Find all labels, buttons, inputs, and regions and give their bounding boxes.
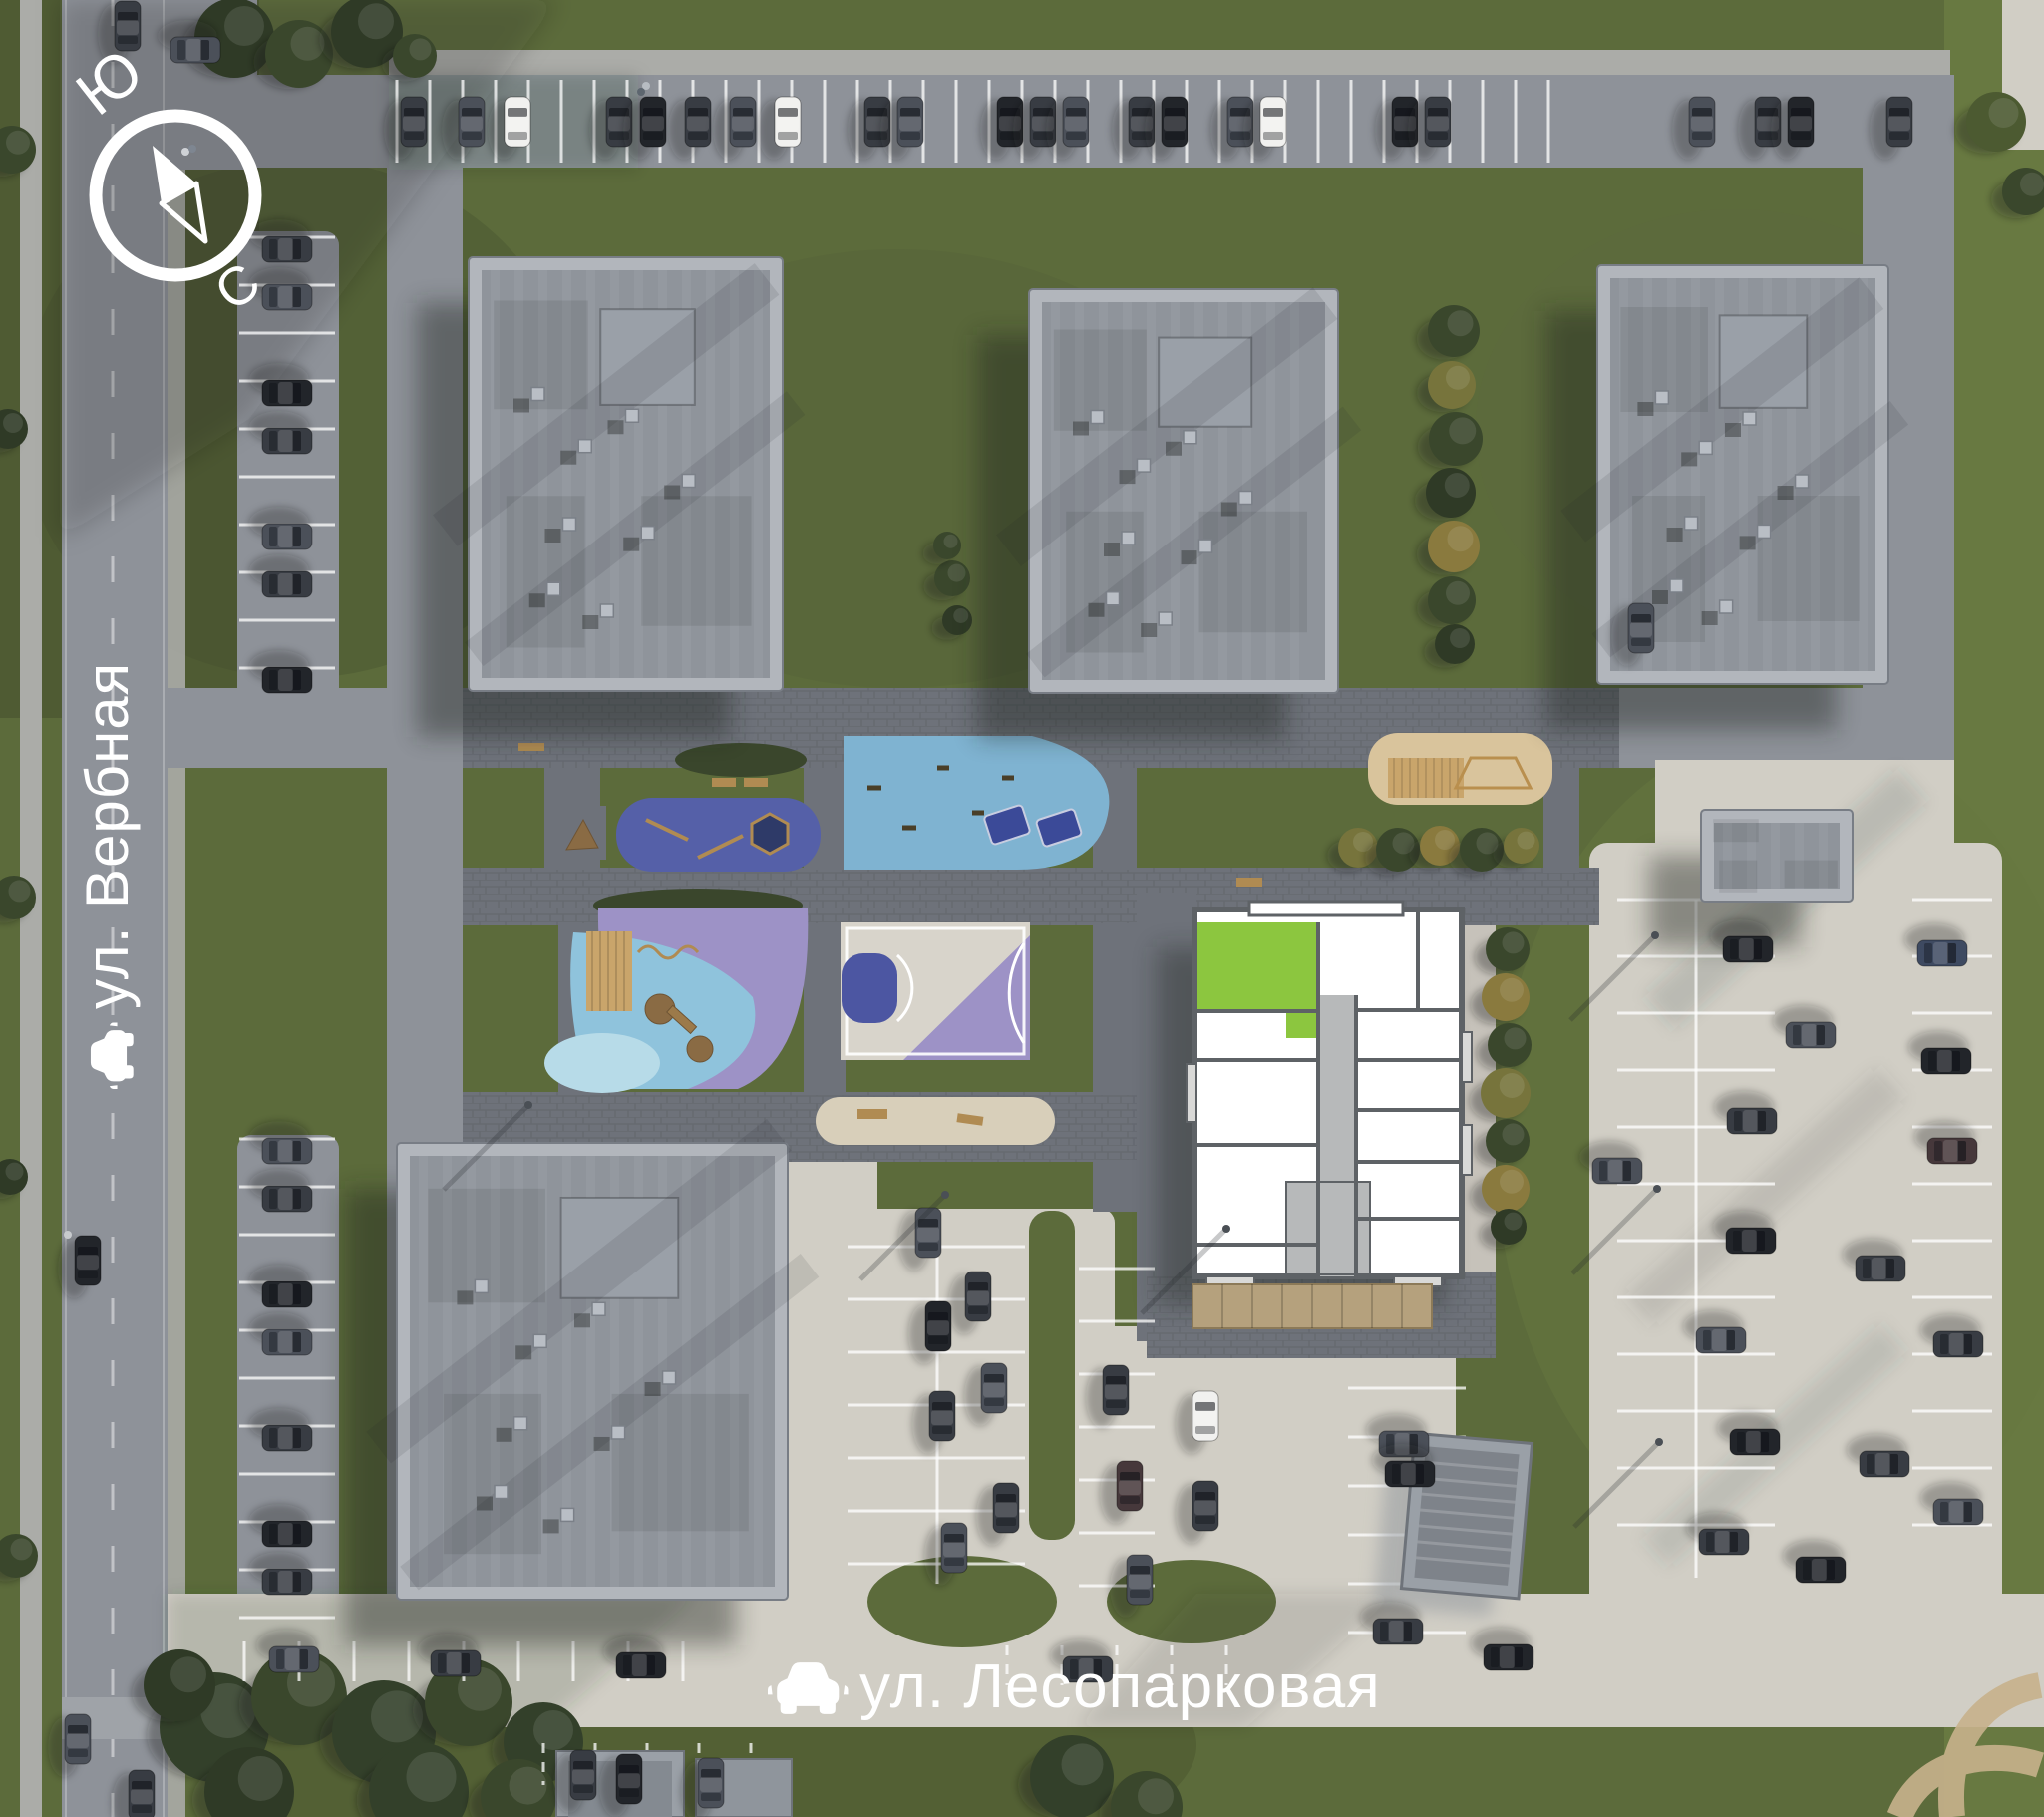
basketball-court bbox=[841, 922, 1030, 1060]
street-name-left: ул. Вербная bbox=[74, 662, 141, 1009]
masterplan-svg: Ю С ул. Вербная ул. Лесопарковая bbox=[0, 0, 2044, 1817]
street-label-lesoparkovaya: ул. Лесопарковая bbox=[768, 1652, 1381, 1721]
wooden-deck bbox=[586, 931, 632, 1011]
building-roof bbox=[1701, 810, 1853, 902]
building-roof bbox=[433, 257, 805, 691]
fitness-area bbox=[844, 736, 1109, 870]
highlighted-apartment-annex[interactable] bbox=[1286, 1011, 1319, 1038]
building-roof bbox=[1560, 265, 1908, 684]
entrance-canopy bbox=[1192, 1284, 1432, 1328]
building-roof bbox=[366, 1119, 819, 1600]
selected-building-floorplan[interactable] bbox=[1157, 902, 1472, 1328]
highlighted-apartment[interactable] bbox=[1197, 922, 1318, 1011]
kids-playground-blue bbox=[616, 798, 821, 872]
building-roof bbox=[996, 287, 1361, 693]
street-name-bottom: ул. Лесопарковая bbox=[859, 1652, 1381, 1721]
masterplan-scene: Ю С ул. Вербная ул. Лесопарковая bbox=[0, 0, 2044, 1817]
pavilion-area bbox=[816, 1097, 1055, 1145]
pergola-area bbox=[1368, 733, 1552, 805]
